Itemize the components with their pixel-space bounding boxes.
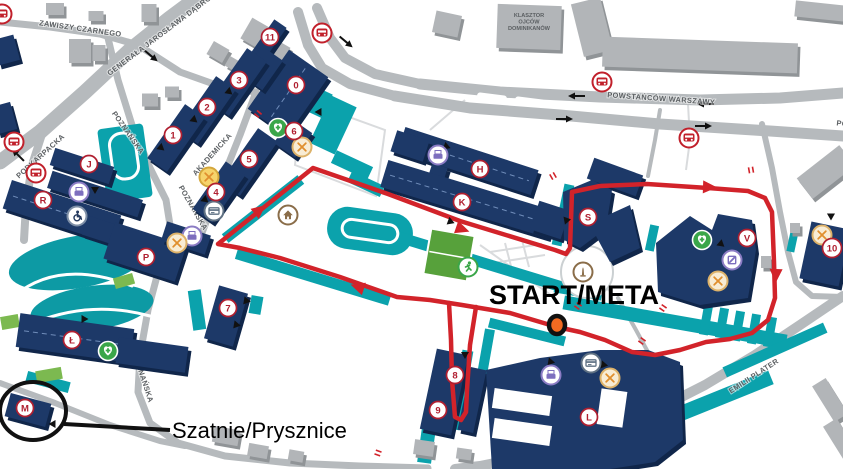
bus-icon: [0, 5, 12, 24]
campus-map: ZAWISZY CZARNEGOGENERAŁA JAROSŁAWA DĄBRO…: [0, 0, 843, 469]
card-icon: [582, 354, 601, 373]
printer-body: [434, 154, 443, 159]
badge-label: S: [585, 212, 591, 223]
badge-label: 7: [225, 303, 230, 314]
bus-icon: [593, 73, 612, 92]
card-outline: [586, 360, 596, 366]
bus-wheel: [32, 174, 34, 176]
building-courtyard: [597, 388, 628, 427]
bus-icon: [680, 129, 699, 148]
building-badge-K: K: [454, 194, 471, 211]
printer-body: [188, 235, 197, 240]
gray-building: [93, 45, 106, 61]
badge-label: 9: [435, 405, 440, 416]
medical-icon: [269, 119, 288, 138]
map-canvas: ZAWISZY CZARNEGOGENERAŁA JAROSŁAWA DĄBRO…: [0, 0, 843, 469]
building-badge-V: V: [739, 230, 756, 247]
badge-label: 5: [246, 154, 252, 165]
badge-label: Ł: [69, 335, 75, 346]
monument-base: [580, 275, 585, 276]
badge-label: 6: [291, 126, 296, 137]
medical-icon: [99, 342, 118, 361]
printer-body: [75, 191, 84, 196]
gray-building: [69, 39, 91, 63]
gray-building: [413, 439, 435, 457]
building-badge-Ł: Ł: [64, 332, 81, 349]
badge-label: 10: [827, 243, 838, 254]
badge-label: 1: [170, 130, 176, 141]
building-badge-S: S: [580, 209, 597, 226]
bus-wheel: [318, 34, 320, 36]
building-badge-H: H: [472, 161, 489, 178]
gray-building: [790, 223, 800, 233]
building-badge-R: R: [35, 192, 52, 209]
runner-icon: [459, 258, 478, 277]
building-badge-11: 11: [262, 29, 279, 46]
printer-paper: [435, 151, 441, 155]
badge-label: M: [21, 403, 29, 414]
printer-icon: [70, 183, 89, 202]
bus-wheel: [38, 174, 40, 176]
badge-label: 0: [293, 80, 298, 91]
badge-label: 8: [452, 370, 457, 381]
bus-window: [598, 79, 606, 81]
building-badge-1: 1: [165, 127, 182, 144]
bus-icon: [313, 24, 332, 43]
building-badge-L: L: [581, 409, 598, 426]
badge-label: J: [86, 159, 91, 170]
building-badge-9: 9: [430, 402, 447, 419]
building-badge-P: P: [138, 249, 155, 266]
bus-wheel: [685, 139, 687, 141]
medical-cross: [700, 239, 705, 241]
medical-cross: [106, 350, 111, 352]
building-badge-6: 6: [286, 123, 303, 140]
building-badge-10: 10: [823, 239, 842, 258]
badge-label: P: [143, 252, 150, 263]
start-meta-marker: [549, 316, 565, 334]
printer-body: [547, 374, 556, 379]
badge-label: R: [40, 195, 47, 206]
card-icon: [205, 202, 224, 221]
gray-building: [165, 87, 179, 98]
wheelchair-icon: [68, 207, 87, 226]
monastery-label: KLASZTOR: [514, 13, 544, 19]
card-outline: [209, 208, 219, 214]
monument-icon: [574, 263, 593, 282]
printer-icon: [429, 146, 448, 165]
building-badge-4: 4: [208, 184, 225, 201]
bus-wheel: [16, 143, 18, 145]
gray-building: [456, 448, 472, 461]
pencil-tip: [729, 261, 731, 263]
wheelchair-head: [76, 211, 79, 214]
building-badge-8: 8: [447, 367, 464, 384]
pencil-icon: [723, 251, 742, 270]
locker-room-label: Szatnie/Prysznice: [172, 418, 347, 443]
home-door: [287, 217, 289, 220]
building-badge-J: J: [81, 156, 98, 173]
badge-label: 3: [236, 75, 241, 86]
printer-paper: [548, 371, 554, 375]
medical-icon: [693, 231, 712, 250]
badge-label: K: [459, 197, 466, 208]
printer-icon: [542, 366, 561, 385]
runner-head: [468, 261, 471, 264]
printer-paper: [76, 188, 82, 192]
bus-window: [0, 11, 6, 13]
badge-label: H: [477, 164, 484, 175]
card-stripe: [586, 361, 596, 363]
bus-wheel: [324, 34, 326, 36]
badge-label: V: [744, 233, 751, 244]
bus-wheel: [10, 143, 12, 145]
bus-wheel: [604, 83, 606, 85]
badge-label: L: [586, 412, 592, 423]
bus-wheel: [691, 139, 693, 141]
building-badge-2: 2: [199, 99, 216, 116]
gray-building: [142, 4, 157, 22]
bus-wheel: [598, 83, 600, 85]
start-meta-label: START/META: [489, 280, 659, 310]
bus-icon: [27, 164, 46, 183]
food-icon: [601, 369, 620, 388]
bus-wheel: [4, 15, 6, 17]
building-badge-M: M: [17, 400, 34, 417]
building-badge-0: 0: [288, 77, 305, 94]
building-badge-5: 5: [241, 151, 258, 168]
card-stripe: [209, 209, 219, 211]
monastery-label: OJCÓW: [518, 18, 540, 26]
medical-cross: [276, 127, 281, 129]
food-icon: [709, 272, 728, 291]
gray-building: [46, 3, 64, 15]
badge-label: 4: [213, 187, 219, 198]
bus-icon: [5, 133, 24, 152]
bus-window: [685, 135, 693, 137]
building-badge-3: 3: [231, 72, 248, 89]
gray-building: [142, 94, 158, 107]
food-icon: [293, 138, 312, 157]
monastery-label: DOMINIKANÓW: [508, 24, 551, 32]
bus-window: [32, 170, 40, 172]
gray-building: [89, 11, 104, 21]
building-badge-7: 7: [220, 300, 237, 317]
bus-window: [10, 139, 18, 141]
barrier-tick: [752, 167, 753, 173]
barrier-tick: [749, 167, 750, 173]
gray-building: [761, 256, 771, 268]
food-icon: [168, 234, 187, 253]
badge-label: 2: [204, 102, 209, 113]
bus-window: [318, 30, 326, 32]
home-icon: [279, 206, 298, 225]
printer-paper: [189, 232, 195, 236]
badge-label: 11: [265, 32, 276, 43]
